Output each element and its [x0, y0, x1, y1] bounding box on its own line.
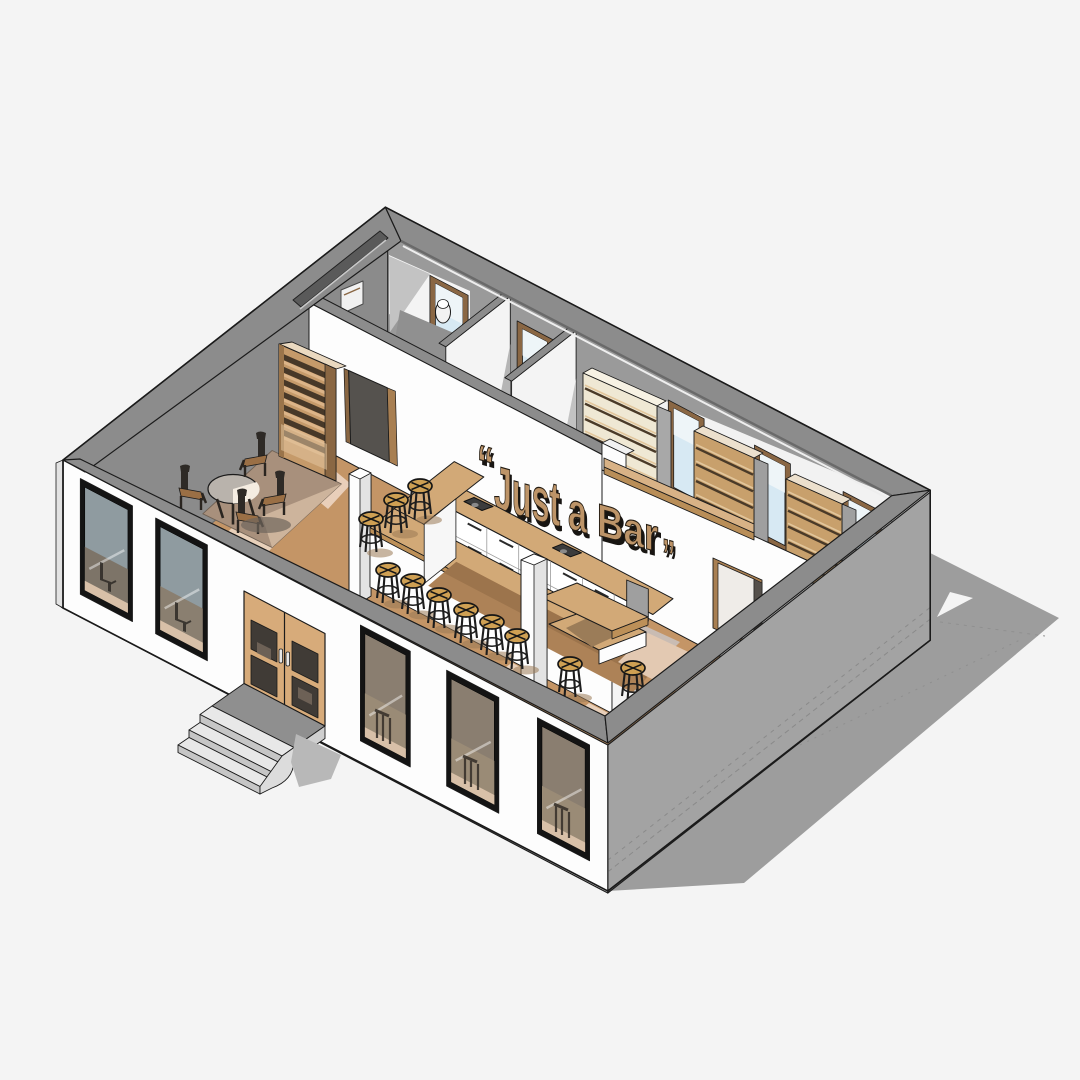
svg-text:”: ” — [662, 530, 675, 585]
svg-text:a: a — [568, 479, 587, 545]
svg-text:“: “ — [477, 435, 494, 497]
